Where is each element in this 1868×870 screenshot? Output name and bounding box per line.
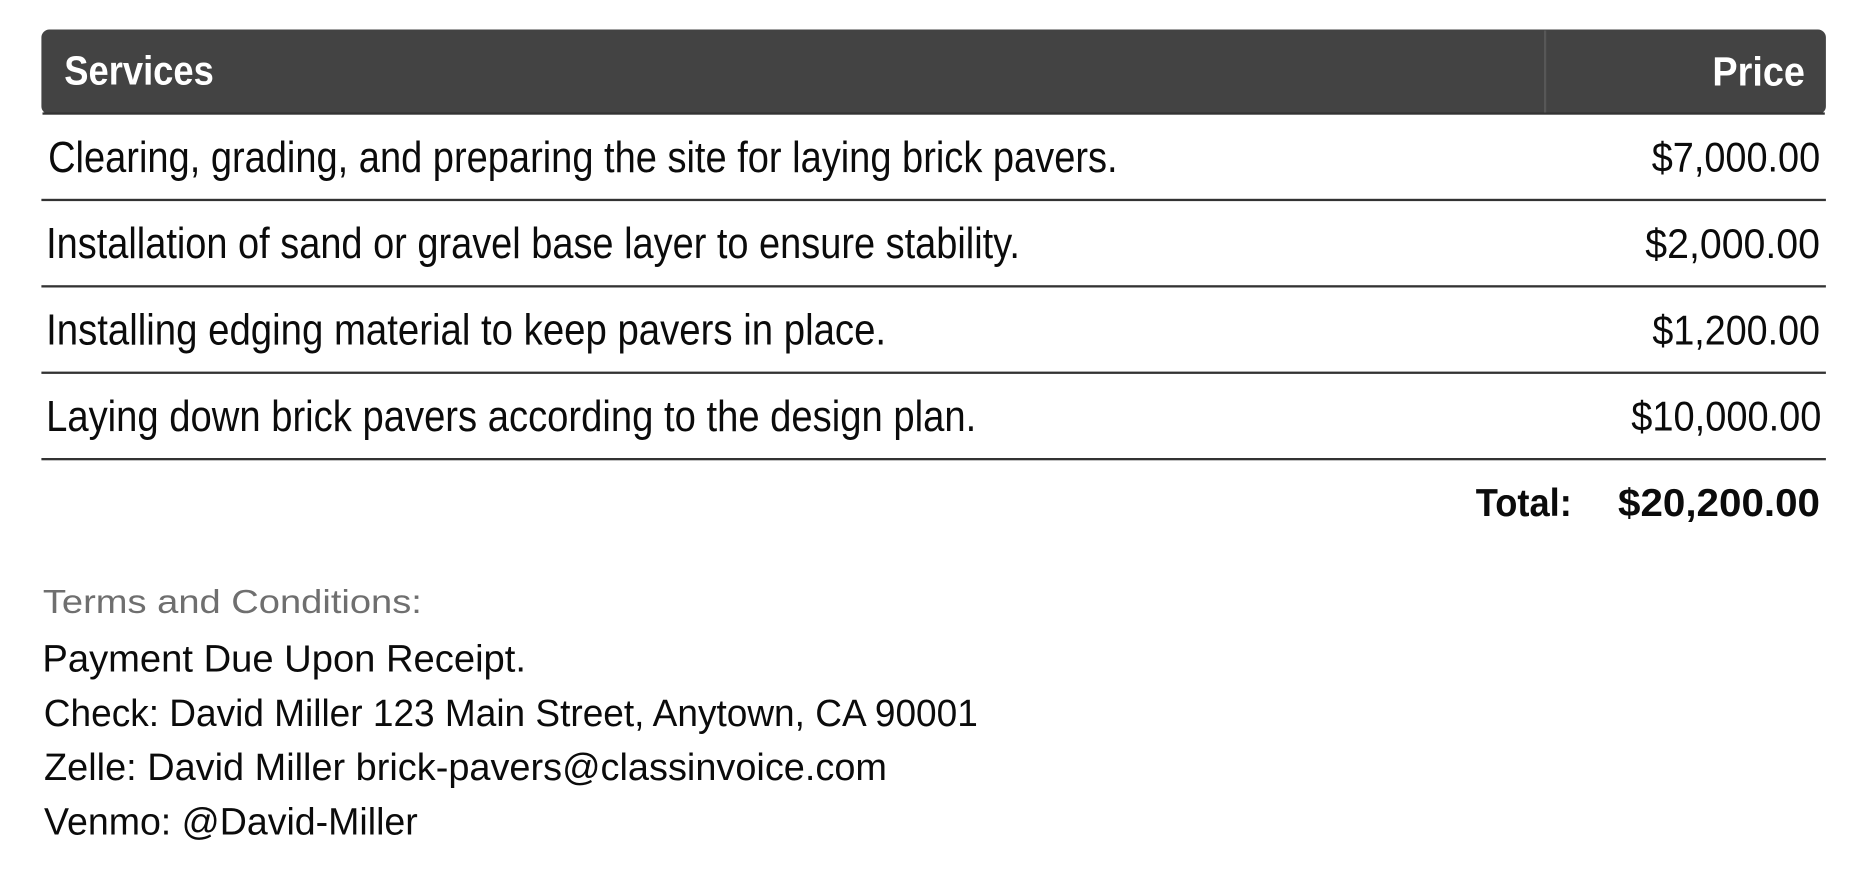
svg-text:Venmo: @David-Miller: Venmo: @David-Miller (44, 800, 418, 842)
svg-text:$10,000.00: $10,000.00 (1631, 393, 1821, 440)
svg-text:Laying down brick pavers accor: Laying down brick pavers according to th… (46, 392, 976, 441)
svg-text:Total:: Total: (1476, 482, 1572, 525)
svg-text:Payment Due Upon Receipt.: Payment Due Upon Receipt. (42, 638, 526, 680)
svg-text:Price: Price (1712, 49, 1805, 95)
svg-text:$7,000.00: $7,000.00 (1652, 134, 1821, 181)
svg-text:Zelle: David Miller brick-pave: Zelle: David Miller brick-pavers@classin… (44, 746, 887, 788)
svg-text:$20,200.00: $20,200.00 (1618, 482, 1820, 525)
svg-text:Installation of sand or gravel: Installation of sand or gravel base laye… (46, 219, 1020, 268)
svg-text:Services: Services (64, 48, 214, 94)
svg-text:$2,000.00: $2,000.00 (1645, 220, 1820, 267)
svg-text:Terms and Conditions:: Terms and Conditions: (43, 584, 422, 621)
svg-text:$1,200.00: $1,200.00 (1652, 306, 1820, 353)
svg-text:Check: David Miller 123 Main S: Check: David Miller 123 Main Street, Any… (44, 692, 978, 734)
svg-text:Installing edging material to: Installing edging material to keep paver… (46, 306, 886, 355)
svg-text:Clearing, grading, and prepari: Clearing, grading, and preparing the sit… (48, 133, 1118, 182)
